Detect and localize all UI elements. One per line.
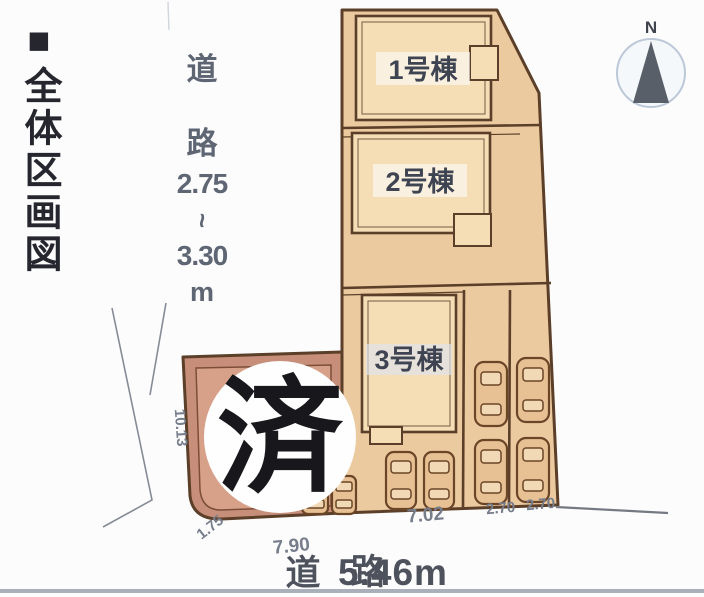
car-icon (386, 452, 416, 509)
sold-stamp-text: 済 (217, 367, 344, 508)
building-1-porch (470, 46, 498, 80)
scan-bottom-border (0, 589, 704, 593)
bottom-road-char1: 道 (285, 554, 320, 593)
building-3-porch (370, 427, 402, 444)
driveway-divider-1 (463, 290, 464, 507)
driveway-divider-2 (509, 290, 510, 506)
road-edge-line-bottom-right (556, 507, 668, 513)
road-edge-line-left-2 (150, 303, 166, 395)
bottom-road-label: 道 路 5.46m (285, 552, 447, 593)
road-edge-line-left (103, 308, 152, 527)
car-icon (475, 440, 507, 504)
dim-strip2: 2.70 (525, 495, 556, 514)
car-icon (517, 358, 549, 422)
dim-west-side: 10.13 (171, 408, 191, 447)
building-3: 3号棟 (362, 295, 456, 444)
dim-strip1: 2.70 (485, 499, 516, 518)
building-2-porch (454, 214, 491, 246)
site-plan: 1号棟 2号棟 3号棟 (0, 0, 704, 597)
site-plan-page: ■全体区画図 道 路 2.75 ~ 3.30 m 1号棟 (0, 0, 704, 597)
car-icon (424, 452, 454, 509)
north-arrow-icon: N (617, 18, 685, 107)
scan-artifact-line (168, 2, 169, 30)
building-1-label: 1号棟 (388, 55, 458, 85)
sold-lot: 済 (183, 352, 356, 519)
building-3-label: 3号棟 (374, 345, 444, 375)
car-icon (475, 362, 507, 426)
bottom-road-width: 5.46m (338, 552, 448, 593)
car-icon (517, 438, 549, 502)
dim-lot3-frontage: 7.02 (406, 503, 445, 527)
building-2-label: 2号棟 (385, 167, 455, 197)
north-label: N (645, 18, 657, 37)
building-2: 2号棟 (352, 133, 491, 246)
building-1: 1号棟 (356, 16, 498, 120)
